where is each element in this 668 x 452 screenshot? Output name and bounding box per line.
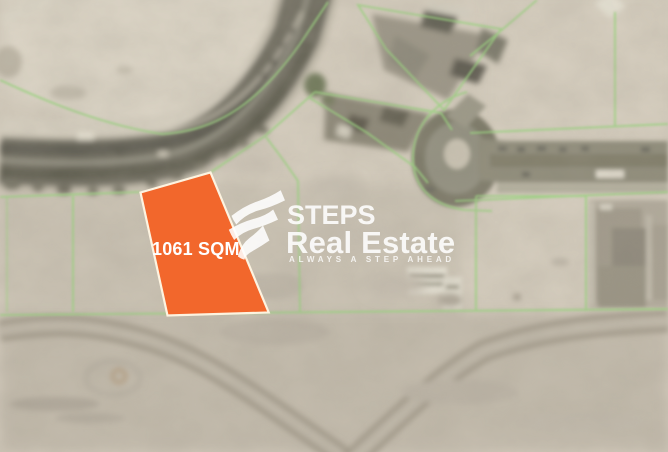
svg-text:ALWAYS A STEP AHEAD: ALWAYS A STEP AHEAD: [289, 255, 455, 264]
svg-text:1061 SQM: 1061 SQM: [152, 239, 240, 259]
